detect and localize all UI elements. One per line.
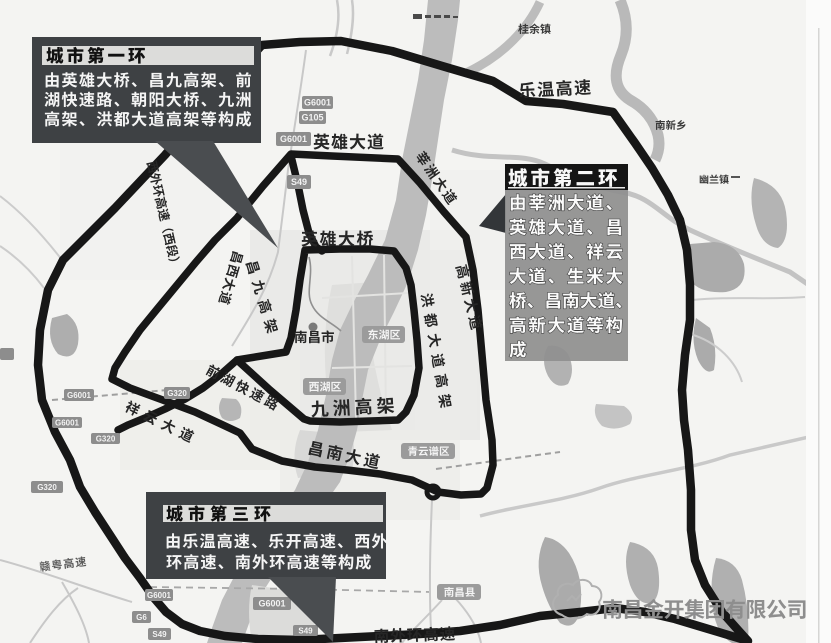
svg-text:G105: G105 [301,113,323,123]
svg-text:G6001: G6001 [67,391,92,400]
svg-text:S49: S49 [152,630,167,639]
svg-text:G6001: G6001 [147,591,172,600]
svg-text:G320: G320 [96,434,116,443]
svg-text:G320: G320 [167,389,187,398]
svg-text:G6001: G6001 [280,134,307,144]
svg-text:G6: G6 [136,613,147,622]
svg-text:G320: G320 [37,483,57,492]
svg-text:G6001: G6001 [258,599,285,609]
svg-text:S49: S49 [291,177,307,187]
svg-text:G6001: G6001 [55,418,80,427]
svg-text:S49: S49 [298,626,313,635]
svg-text:G6001: G6001 [304,98,331,108]
